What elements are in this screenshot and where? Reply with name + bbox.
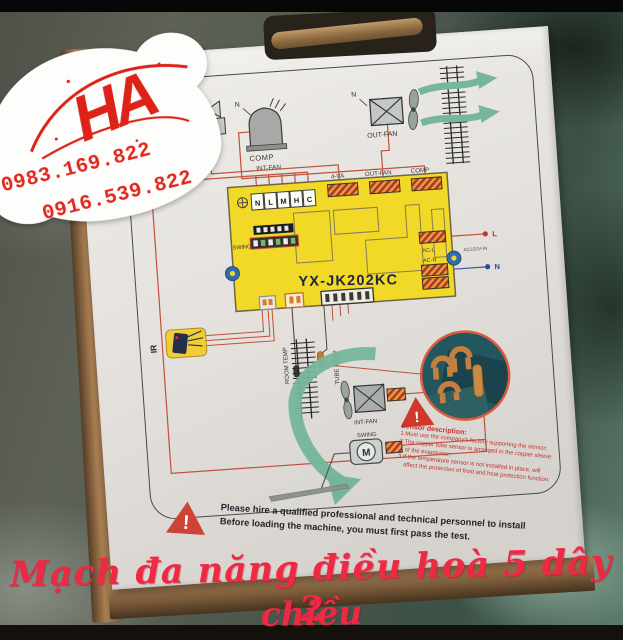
ir-remote-icon (165, 328, 207, 359)
tube-temp-wire (318, 305, 327, 353)
compressor-icon (242, 97, 288, 151)
svg-text:M: M (280, 197, 287, 206)
intfan-bottom-label: INT-FAN (354, 419, 377, 427)
indoor-fan-icon (340, 377, 407, 420)
live-label: L (492, 229, 498, 238)
connector-ac-n2 (422, 277, 449, 290)
box-handle-roll (271, 17, 424, 50)
control-board: N L M H C (219, 172, 463, 312)
connector-outfan (369, 180, 400, 194)
room-temp-label: ROOM TEMP (283, 347, 292, 384)
install-warning-text: Please hire a qualified professional and… (219, 501, 565, 550)
neutral-dot (485, 264, 491, 270)
sensor-photo-inset (418, 328, 526, 427)
product-photo: ~ 4-VA N N COMP (0, 0, 623, 640)
connector-ac-n (421, 264, 448, 277)
intfan-top-label: INT-FAN (256, 164, 282, 173)
svg-text:!: ! (182, 512, 190, 534)
warning-triangle-icon: ! (164, 498, 209, 539)
svg-text:M: M (362, 447, 371, 459)
swing-conn-label: SWING (233, 244, 252, 251)
model-number: YX-JK202KC (298, 272, 398, 290)
svg-text:N: N (255, 198, 261, 207)
shop-watermark-sticker: HA 0983.169.822 0916.539.822 (0, 36, 228, 231)
live-dot (483, 231, 489, 237)
ir-label: IR (148, 344, 159, 353)
photo-top-bar (0, 0, 623, 12)
outfan-label: OUT-FAN (367, 131, 398, 140)
comp-label: COMP (249, 152, 274, 163)
swing-motor-label: SWING (357, 432, 378, 439)
neutral-label: N (494, 262, 500, 271)
outdoor-fan-icon (359, 89, 421, 134)
connector-comp (411, 177, 442, 191)
connector-4va (327, 183, 358, 197)
svg-text:H: H (293, 196, 299, 205)
comp-neutral-label: N (234, 102, 240, 109)
ac-n-label: AC-N (423, 257, 437, 264)
connector-ac-l (419, 231, 446, 244)
outfan-neutral-label: N (351, 92, 357, 99)
room-temp-wire (292, 308, 296, 367)
ac-l-label: AC-L (422, 247, 435, 254)
box-handle-slot (263, 7, 437, 60)
ac-in-label: AC220V-IN (463, 246, 488, 254)
